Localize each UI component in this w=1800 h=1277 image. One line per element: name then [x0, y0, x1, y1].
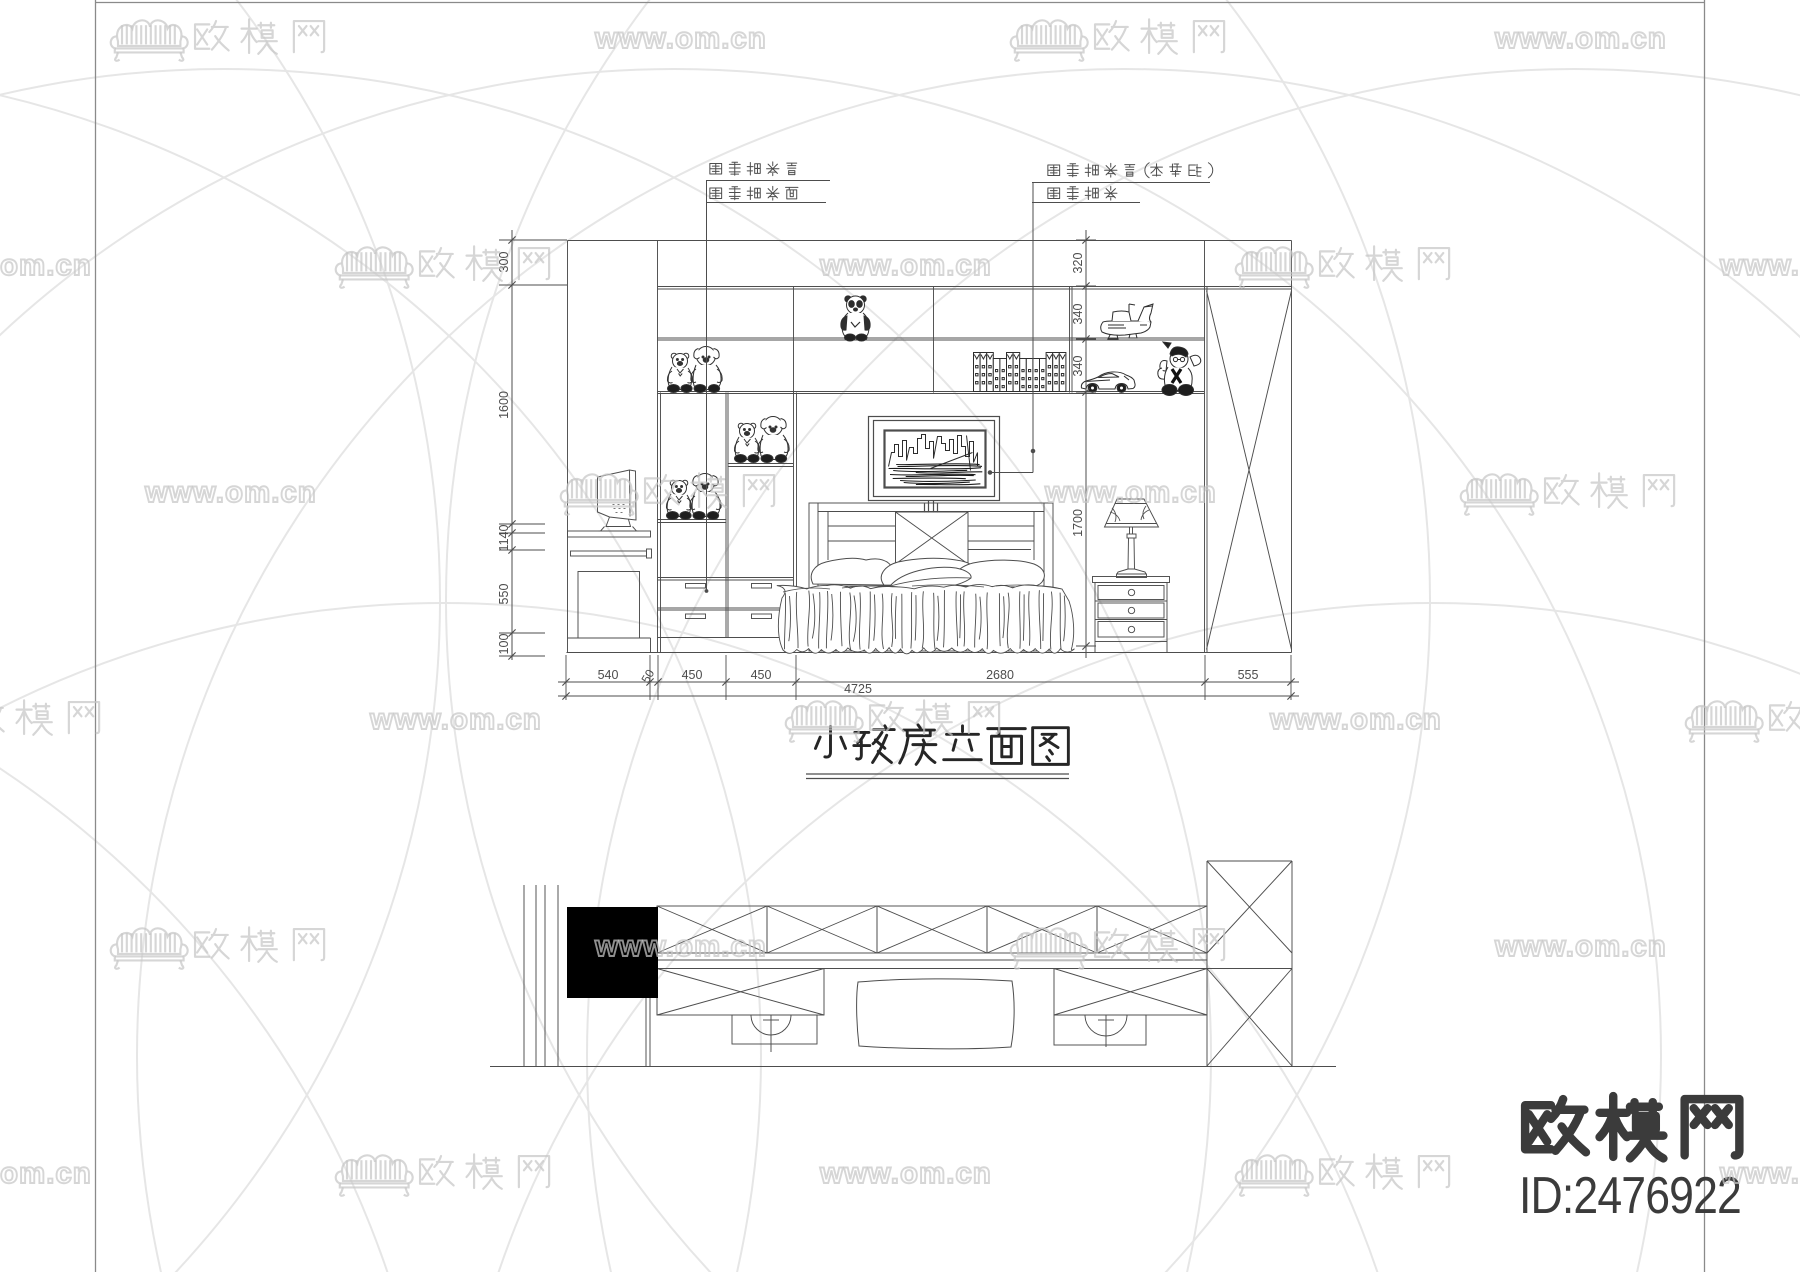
- svg-text:www.om.cn: www.om.cn: [0, 1157, 92, 1190]
- svg-text:555: 555: [1238, 668, 1259, 682]
- svg-text:100: 100: [497, 634, 511, 655]
- svg-text:340: 340: [1071, 304, 1085, 325]
- svg-text:www.om.cn: www.om.cn: [144, 476, 317, 509]
- svg-text:ID:2476922: ID:2476922: [1519, 1167, 1741, 1225]
- svg-text:www.om.cn: www.om.cn: [1269, 703, 1442, 736]
- svg-text:www.om.cn: www.om.cn: [369, 703, 542, 736]
- svg-text:www.om.cn: www.om.cn: [1719, 1157, 1800, 1190]
- svg-text:2680: 2680: [986, 668, 1014, 682]
- svg-text:1600: 1600: [497, 391, 511, 419]
- svg-text:www.om.cn: www.om.cn: [594, 930, 767, 963]
- svg-text:450: 450: [682, 668, 703, 682]
- svg-text:550: 550: [497, 584, 511, 605]
- svg-text:www.om.cn: www.om.cn: [594, 22, 767, 55]
- svg-text:1140: 1140: [497, 525, 511, 552]
- svg-text:www.om.cn: www.om.cn: [1494, 930, 1667, 963]
- svg-text:www.om.cn: www.om.cn: [1044, 476, 1217, 509]
- svg-text:540: 540: [598, 668, 619, 682]
- svg-text:300: 300: [497, 252, 511, 273]
- svg-text:www.om.cn: www.om.cn: [0, 249, 92, 282]
- svg-text:320: 320: [1071, 253, 1085, 274]
- svg-text:450: 450: [751, 668, 772, 682]
- svg-text:www.om.cn: www.om.cn: [1719, 249, 1800, 282]
- svg-text:340: 340: [1071, 356, 1085, 377]
- svg-text:4725: 4725: [844, 682, 872, 696]
- svg-text:www.om.cn: www.om.cn: [819, 249, 992, 282]
- svg-text:www.om.cn: www.om.cn: [1494, 22, 1667, 55]
- svg-text:1700: 1700: [1071, 509, 1085, 537]
- svg-text:www.om.cn: www.om.cn: [819, 1157, 992, 1190]
